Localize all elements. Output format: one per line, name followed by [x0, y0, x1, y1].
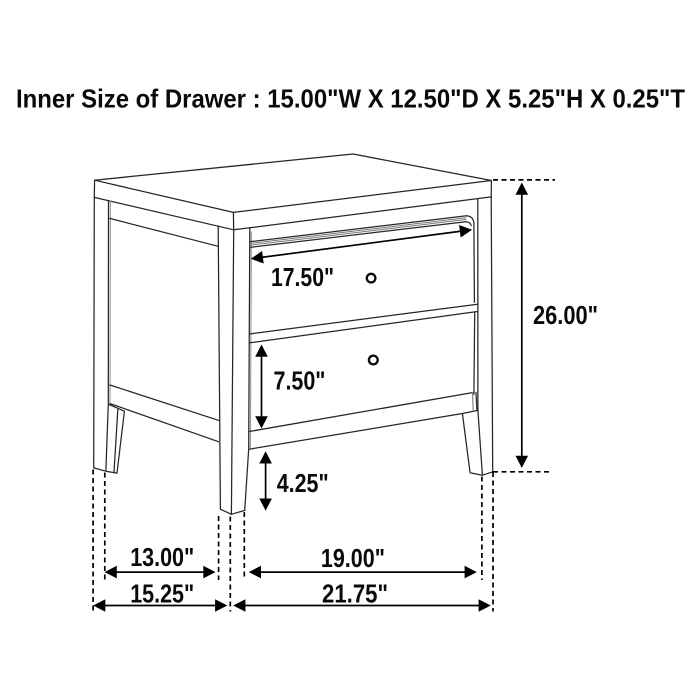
svg-text:15.25": 15.25"	[130, 579, 194, 609]
svg-text:19.00": 19.00"	[321, 543, 385, 573]
svg-text:Inner Size of Drawer : 15.00"W: Inner Size of Drawer : 15.00"W X 12.50"D…	[16, 84, 685, 114]
svg-text:4.25": 4.25"	[277, 468, 329, 498]
svg-text:13.00": 13.00"	[130, 542, 194, 572]
svg-text:26.00": 26.00"	[533, 300, 598, 330]
svg-text:17.50": 17.50"	[271, 262, 334, 292]
svg-text:21.75": 21.75"	[322, 579, 388, 609]
svg-text:7.50": 7.50"	[274, 366, 326, 396]
